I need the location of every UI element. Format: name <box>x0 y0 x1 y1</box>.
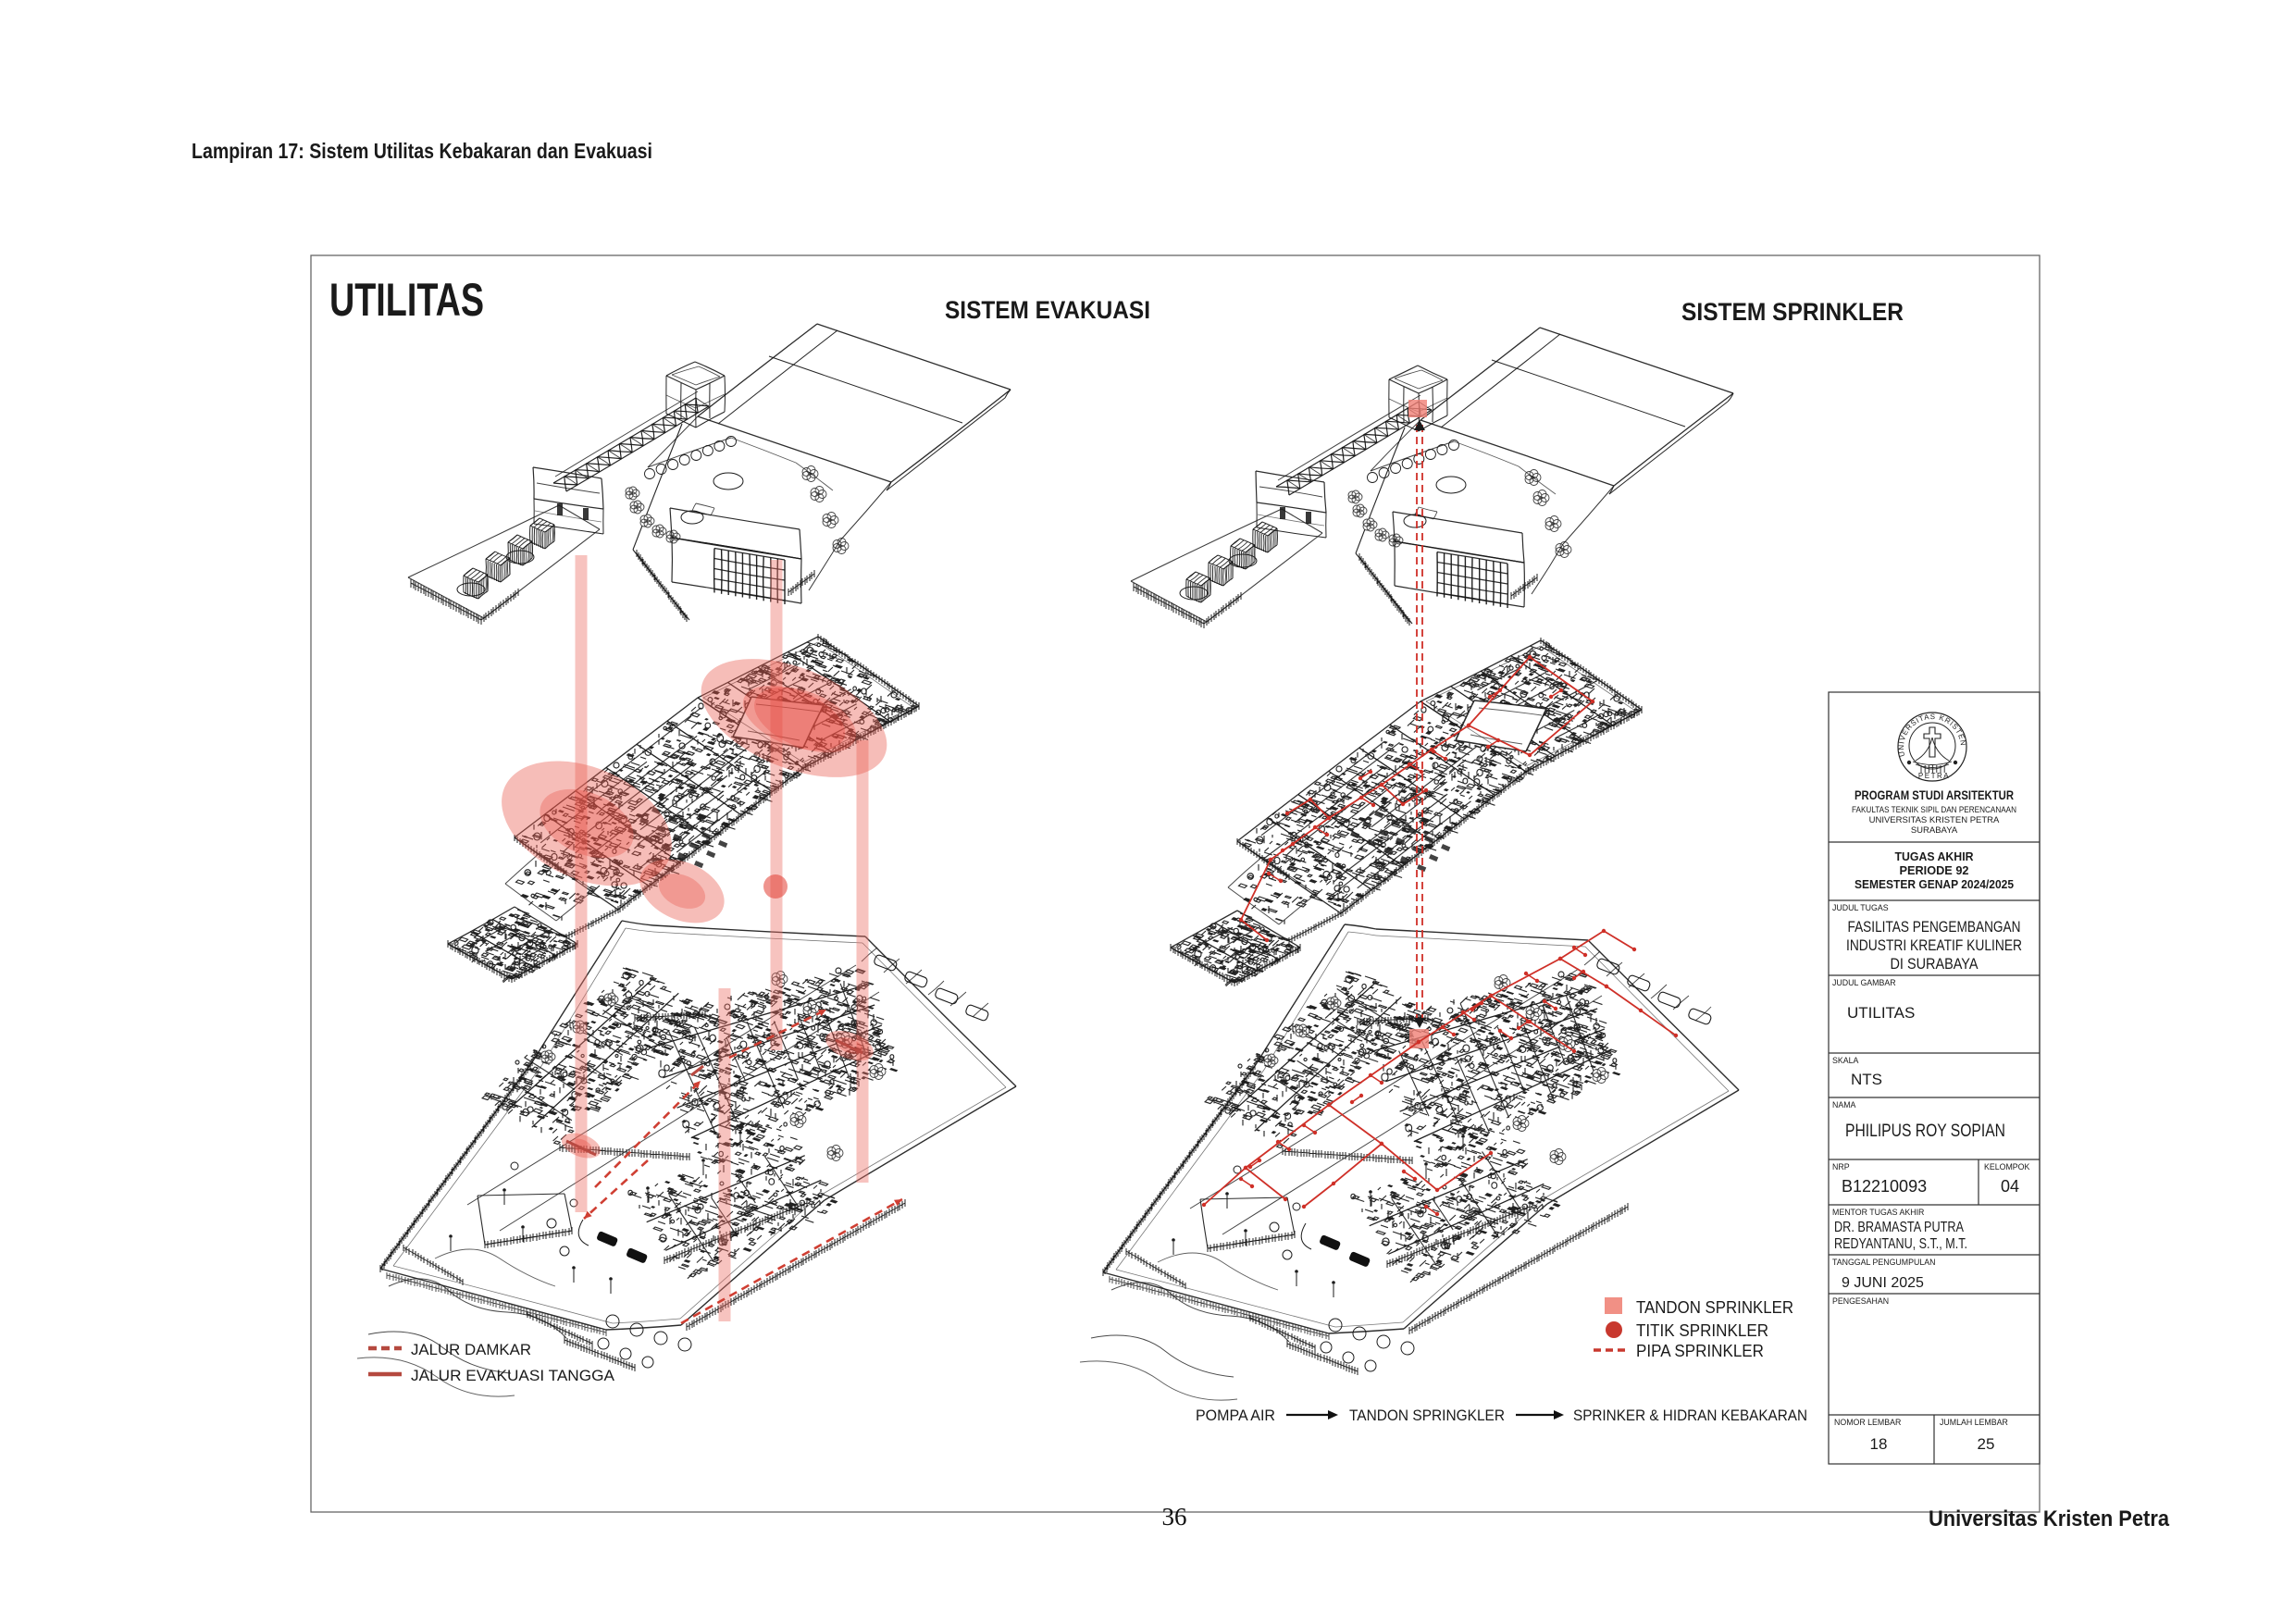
svg-text:SURABAYA: SURABAYA <box>1911 825 1958 836</box>
svg-text:TANDON SPRINGKLER: TANDON SPRINGKLER <box>1349 1407 1505 1424</box>
svg-text:JUDUL GAMBAR: JUDUL GAMBAR <box>1832 978 1896 987</box>
svg-text:UTILITAS: UTILITAS <box>329 274 484 326</box>
svg-text:SKALA: SKALA <box>1832 1056 1858 1065</box>
svg-text:DR. BRAMASTA PUTRA: DR. BRAMASTA PUTRA <box>1834 1220 1965 1235</box>
svg-text:9 JUNI 2025: 9 JUNI 2025 <box>1842 1275 1924 1291</box>
svg-text:PERIODE 92: PERIODE 92 <box>1900 863 1969 877</box>
svg-text:TITIK SPRINKLER: TITIK SPRINKLER <box>1636 1321 1768 1340</box>
svg-text:PIPA SPRINKLER: PIPA SPRINKLER <box>1636 1342 1764 1360</box>
svg-text:PROGRAM STUDI ARSITEKTUR: PROGRAM STUDI ARSITEKTUR <box>1855 788 2014 802</box>
svg-text:SEMESTER GENAP 2024/2025: SEMESTER GENAP 2024/2025 <box>1855 877 2014 891</box>
svg-text:NTS: NTS <box>1851 1071 1882 1088</box>
svg-text:PENGESAHAN: PENGESAHAN <box>1832 1296 1889 1306</box>
svg-text:Universitas Kristen Petra: Universitas Kristen Petra <box>1929 1506 2170 1531</box>
svg-text:JALUR DAMKAR: JALUR DAMKAR <box>411 1341 531 1358</box>
svg-text:UNIVERSITAS KRISTEN PETRA: UNIVERSITAS KRISTEN PETRA <box>1869 815 2000 825</box>
svg-text:PHILIPUS ROY SOPIAN: PHILIPUS ROY SOPIAN <box>1845 1122 2005 1141</box>
svg-text:TUGAS AKHIR: TUGAS AKHIR <box>1895 849 1975 863</box>
svg-text:18: 18 <box>1870 1435 1888 1453</box>
svg-text:NAMA: NAMA <box>1832 1100 1856 1110</box>
svg-text:JUMLAH LEMBAR: JUMLAH LEMBAR <box>1940 1418 2008 1427</box>
svg-text:SPRINKER & HIDRAN KEBAKARAN: SPRINKER & HIDRAN KEBAKARAN <box>1573 1407 1807 1424</box>
svg-text:JALUR EVAKUASI TANGGA: JALUR EVAKUASI TANGGA <box>411 1367 615 1384</box>
svg-text:INDUSTRI KREATIF KULINER: INDUSTRI KREATIF KULINER <box>1846 936 2022 954</box>
svg-text:TANGGAL PENGUMPULAN: TANGGAL PENGUMPULAN <box>1832 1258 1935 1267</box>
svg-text:JUDUL TUGAS: JUDUL TUGAS <box>1832 903 1889 912</box>
svg-text:NRP: NRP <box>1832 1162 1850 1172</box>
svg-text:NOMOR LEMBAR: NOMOR LEMBAR <box>1834 1418 1901 1427</box>
svg-text:B12210093: B12210093 <box>1842 1177 1927 1196</box>
svg-text:TANDON SPRINKLER: TANDON SPRINKLER <box>1636 1298 1793 1317</box>
svg-text:MENTOR TUGAS AKHIR: MENTOR TUGAS AKHIR <box>1832 1208 1924 1217</box>
svg-text:36: 36 <box>1162 1503 1187 1531</box>
svg-text:SISTEM SPRINKLER: SISTEM SPRINKLER <box>1681 298 1904 326</box>
svg-text:POMPA AIR: POMPA AIR <box>1196 1407 1275 1424</box>
svg-text:PETRA: PETRA <box>1918 772 1950 780</box>
svg-text:25: 25 <box>1978 1435 1995 1453</box>
svg-text:04: 04 <box>2001 1177 2019 1196</box>
svg-text:SISTEM EVAKUASI: SISTEM EVAKUASI <box>945 296 1150 324</box>
svg-text:Lampiran 17: Sistem Utilitas K: Lampiran 17: Sistem Utilitas Kebakaran d… <box>192 139 652 163</box>
svg-text:FAKULTAS TEKNIK SIPIL DAN PERE: FAKULTAS TEKNIK SIPIL DAN PERENCANAAN <box>1852 805 2016 815</box>
svg-text:KELOMPOK: KELOMPOK <box>1984 1162 2030 1172</box>
svg-text:DI SURABAYA: DI SURABAYA <box>1891 955 1979 973</box>
svg-text:REDYANTANU, S.T., M.T.: REDYANTANU, S.T., M.T. <box>1834 1236 1967 1252</box>
svg-text:UTILITAS: UTILITAS <box>1847 1004 1915 1022</box>
svg-text:FASILITAS PENGEMBANGAN: FASILITAS PENGEMBANGAN <box>1848 918 2021 936</box>
